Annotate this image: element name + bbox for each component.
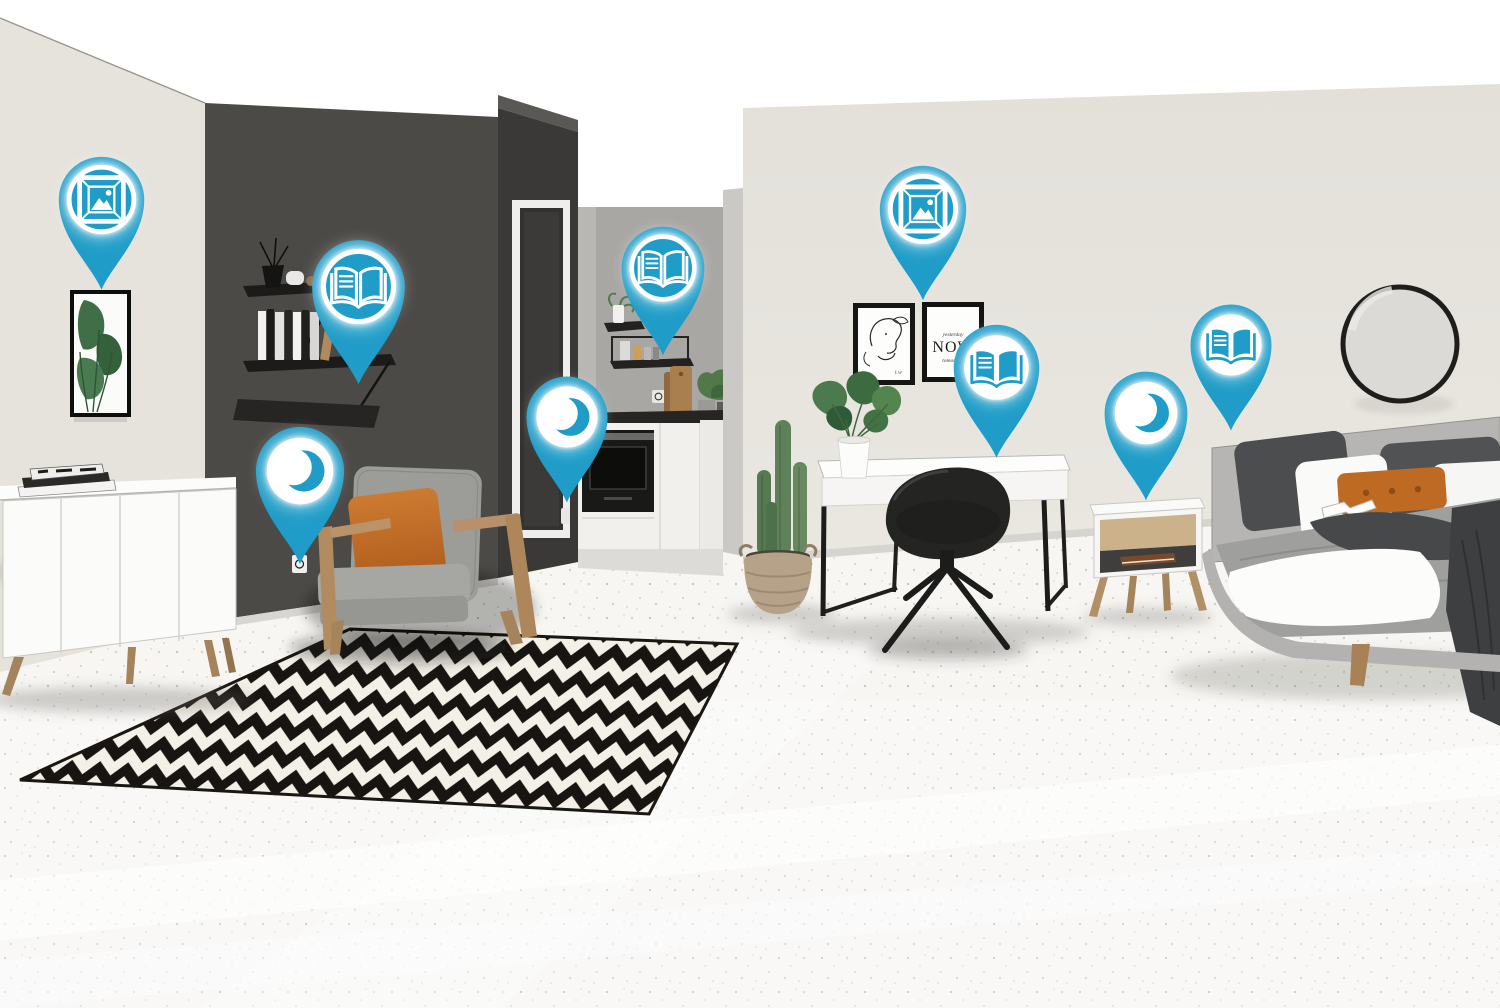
picture-living-pin[interactable]	[54, 152, 149, 292]
night-nightstand-pin[interactable]	[1100, 367, 1192, 502]
reading-shelf-pin[interactable]	[307, 235, 410, 386]
room-scene: t.w yesterday NOW tomorrow	[0, 0, 1500, 1008]
hotspot-layer	[0, 0, 1500, 1008]
reading-desk-pin[interactable]	[949, 320, 1044, 460]
reading-bed-pin[interactable]	[1186, 300, 1276, 432]
night-armchair-pin[interactable]	[251, 422, 349, 566]
picture-bedroom-pin[interactable]	[875, 161, 971, 302]
reading-kitchen-pin[interactable]	[617, 222, 709, 357]
night-kitchen-pin[interactable]	[522, 372, 612, 504]
